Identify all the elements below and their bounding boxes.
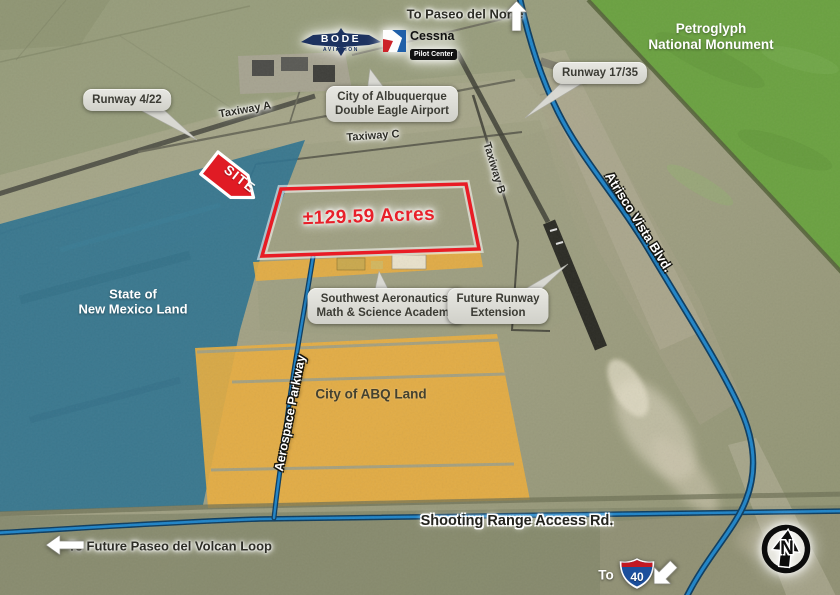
to-paseo-del-volcan-label: To Future Paseo del Volcan Loop bbox=[68, 539, 272, 554]
bode-logo-subtext: AVIATION bbox=[323, 47, 359, 53]
future-runway-callout: Future Runway Extension bbox=[447, 288, 548, 324]
airport-callout-line1: City of Albuquerque bbox=[337, 91, 446, 103]
cessna-pilot-center-logo: Cessna Pilot Center bbox=[383, 30, 457, 61]
i40-to-label: To bbox=[598, 568, 614, 583]
state-land-line2: New Mexico Land bbox=[78, 302, 187, 317]
shooting-range-road-label: Shooting Range Access Rd. bbox=[421, 513, 614, 529]
west-direction-arrow-icon bbox=[46, 535, 84, 555]
runway-4-22-callout: Runway 4/22 bbox=[83, 89, 171, 111]
state-land-line1: State of bbox=[109, 287, 157, 302]
site-acreage-label: ±129.59 Acres bbox=[302, 204, 435, 231]
petroglyph-monument-label: Petroglyph National Monument bbox=[648, 21, 773, 53]
north-direction-arrow-icon bbox=[506, 1, 527, 31]
future-runway-line2: Extension bbox=[471, 307, 526, 319]
petroglyph-line2: National Monument bbox=[648, 37, 773, 52]
petroglyph-line1: Petroglyph bbox=[676, 21, 747, 36]
airport-callout: City of Albuquerque Double Eagle Airport bbox=[326, 86, 458, 122]
runway-17-35-callout: Runway 17/35 bbox=[553, 62, 647, 84]
state-land-label: State of New Mexico Land bbox=[78, 287, 187, 318]
aerial-site-map: To Paseo del Norte BODE AVIATION Cessna … bbox=[0, 0, 840, 595]
academy-callout: Southwest Aeronautics, Math & Science Ac… bbox=[308, 288, 465, 324]
bode-aviation-logo: BODE AVIATION bbox=[300, 28, 382, 58]
academy-callout-line1: Southwest Aeronautics, bbox=[321, 293, 452, 305]
compass-north-letter: N bbox=[780, 538, 794, 560]
cessna-logo-text: Cessna bbox=[410, 30, 457, 43]
airport-callout-line2: Double Eagle Airport bbox=[335, 105, 449, 117]
cessna-logo-mark-icon bbox=[383, 30, 406, 52]
i40-route-number: 40 bbox=[630, 570, 643, 584]
academy-callout-line2: Math & Science Academy bbox=[317, 307, 456, 319]
bode-logo-text: BODE bbox=[321, 33, 361, 45]
abq-land-label: City of ABQ Land bbox=[315, 387, 426, 402]
future-runway-line1: Future Runway bbox=[456, 293, 539, 305]
cessna-pilot-center-badge: Pilot Center bbox=[410, 49, 457, 60]
